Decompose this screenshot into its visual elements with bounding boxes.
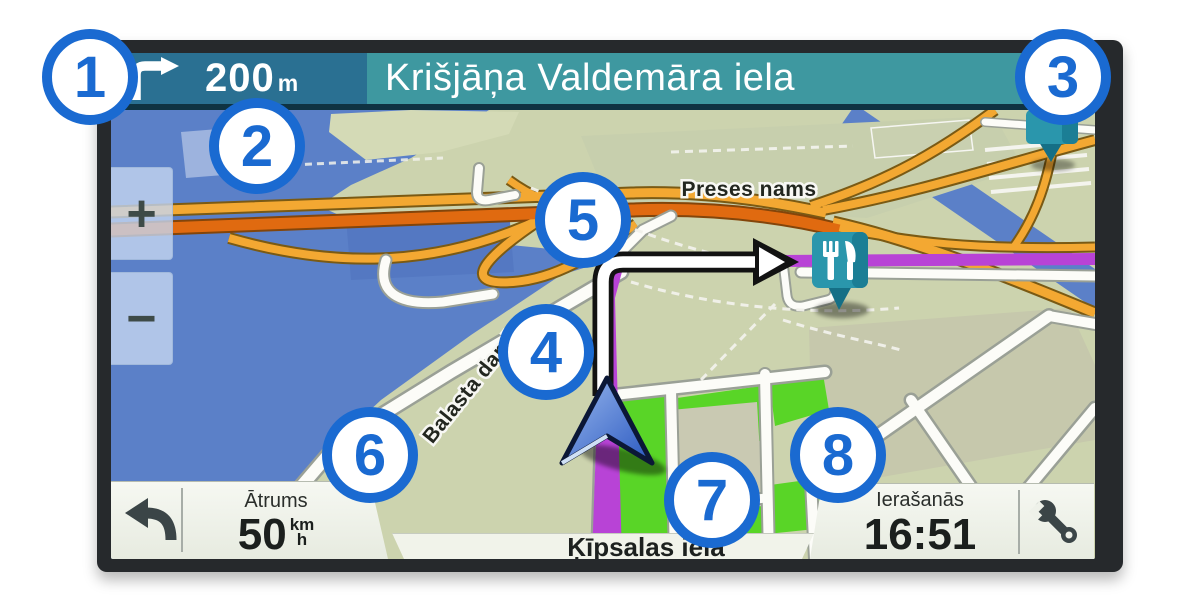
next-street-section: Krišjāņa Valdemāra iela bbox=[367, 53, 1095, 104]
divider bbox=[1018, 490, 1020, 554]
speed-unit: km h bbox=[290, 517, 315, 547]
speed-value: 50 bbox=[238, 515, 287, 555]
callout-7: 7 bbox=[664, 452, 760, 548]
screenshot-canvas: Preses nams Balasta dambis + − 200 m bbox=[0, 0, 1200, 603]
callout-6: 6 bbox=[322, 407, 418, 503]
zoom-out-button[interactable]: − bbox=[111, 272, 173, 365]
wrench-icon bbox=[1029, 500, 1077, 543]
arrival-time: 16:51 bbox=[822, 515, 1018, 555]
map-label-building: Preses nams bbox=[681, 178, 816, 201]
callout-3: 3 bbox=[1015, 29, 1111, 125]
callout-5: 5 bbox=[535, 172, 631, 268]
next-street-name: Krišjāņa Valdemāra iela bbox=[385, 57, 795, 100]
turn-distance-section: 200 m bbox=[111, 53, 367, 104]
turn-distance-unit: m bbox=[278, 70, 298, 97]
speed-field[interactable]: Ātrums 50 km h bbox=[183, 490, 369, 555]
tools-button[interactable] bbox=[1028, 494, 1084, 550]
back-button[interactable] bbox=[123, 496, 179, 546]
current-street-field[interactable]: Ķīpsalas iela bbox=[392, 533, 814, 559]
turn-distance-value: 200 bbox=[205, 56, 275, 101]
callout-1: 1 bbox=[42, 29, 138, 125]
callout-8: 8 bbox=[790, 407, 886, 503]
speed-unit-bottom: h bbox=[290, 532, 315, 547]
callout-4: 4 bbox=[498, 304, 594, 400]
callout-2: 2 bbox=[209, 98, 305, 194]
zoom-in-button[interactable]: + bbox=[111, 167, 173, 260]
turn-distance: 200 m bbox=[205, 56, 298, 101]
